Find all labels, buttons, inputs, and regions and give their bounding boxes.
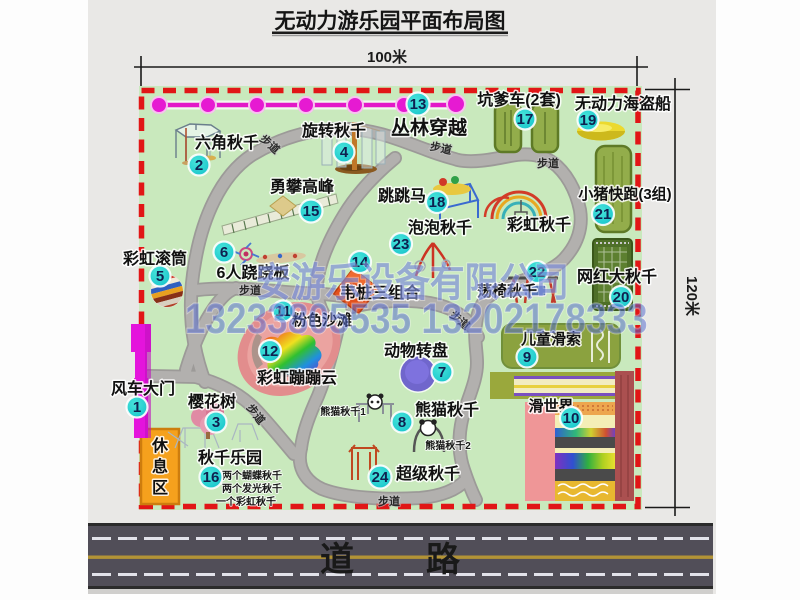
svg-text:道: 道 [320,541,354,579]
svg-text:7: 7 [438,364,446,381]
svg-text:一个彩虹秋千: 一个彩虹秋千 [216,495,276,508]
svg-text:两个蝴蝶秋千: 两个蝴蝶秋千 [222,469,282,482]
svg-text:21: 21 [595,206,612,223]
svg-text:彩虹蹦蹦云: 彩虹蹦蹦云 [256,368,337,387]
svg-text:息: 息 [152,457,168,476]
svg-text:18: 18 [429,194,446,211]
svg-text:彩虹滚筒: 彩虹滚筒 [122,249,187,268]
svg-text:网红大秋千: 网红大秋千 [577,267,657,286]
svg-text:16: 16 [203,469,220,486]
svg-text:六角秋千: 六角秋千 [195,133,259,152]
svg-text:12: 12 [262,343,279,360]
svg-text:跳跳马: 跳跳马 [378,186,426,205]
svg-text:2: 2 [195,157,203,174]
svg-text:100米: 100米 [367,48,408,66]
svg-text:丛林穿越: 丛林穿越 [391,116,468,139]
svg-text:彩虹秋千: 彩虹秋千 [506,215,571,234]
svg-text:15: 15 [303,203,320,220]
svg-text:13233805535 13202178333: 13233805535 13202178333 [185,295,648,342]
svg-text:熊猫秋千1: 熊猫秋千1 [320,405,366,418]
svg-text:步道: 步道 [378,494,400,508]
svg-text:5: 5 [156,268,164,285]
svg-text:熊猫秋千: 熊猫秋千 [415,400,479,419]
svg-text:120米: 120米 [683,276,701,317]
svg-text:17: 17 [517,111,534,128]
svg-text:步道: 步道 [537,156,559,170]
svg-text:泡泡秋千: 泡泡秋千 [408,218,472,237]
svg-text:1: 1 [133,399,141,416]
svg-text:熊猫秋千2: 熊猫秋千2 [425,439,471,452]
svg-text:6: 6 [220,244,228,261]
svg-text:风车大门: 风车大门 [111,379,175,398]
svg-text:区: 区 [152,479,168,497]
svg-text:4: 4 [340,144,349,161]
svg-text:小猪快跑(3组): 小猪快跑(3组) [578,185,671,203]
svg-text:休: 休 [151,436,169,455]
svg-text:10: 10 [563,410,580,427]
svg-text:9: 9 [523,349,531,366]
svg-text:24: 24 [372,469,389,486]
svg-text:8: 8 [398,414,406,431]
svg-text:坑爹车(2套): 坑爹车(2套) [477,90,561,109]
svg-text:两个发光秋千: 两个发光秋千 [222,482,282,495]
svg-text:3: 3 [212,414,220,431]
svg-text:路: 路 [426,541,461,579]
svg-text:超级秋千: 超级秋千 [395,464,460,483]
svg-text:19: 19 [580,112,597,129]
svg-text:旋转秋千: 旋转秋千 [301,121,366,140]
svg-text:勇攀高峰: 勇攀高峰 [270,177,335,196]
svg-text:樱花树: 樱花树 [188,392,236,411]
svg-text:23: 23 [393,236,410,253]
svg-text:动物转盘: 动物转盘 [384,341,448,360]
svg-text:无动力游乐园平面布局图: 无动力游乐园平面布局图 [275,9,506,33]
svg-text:秋千乐园: 秋千乐园 [198,448,262,467]
svg-text:13: 13 [410,96,427,113]
